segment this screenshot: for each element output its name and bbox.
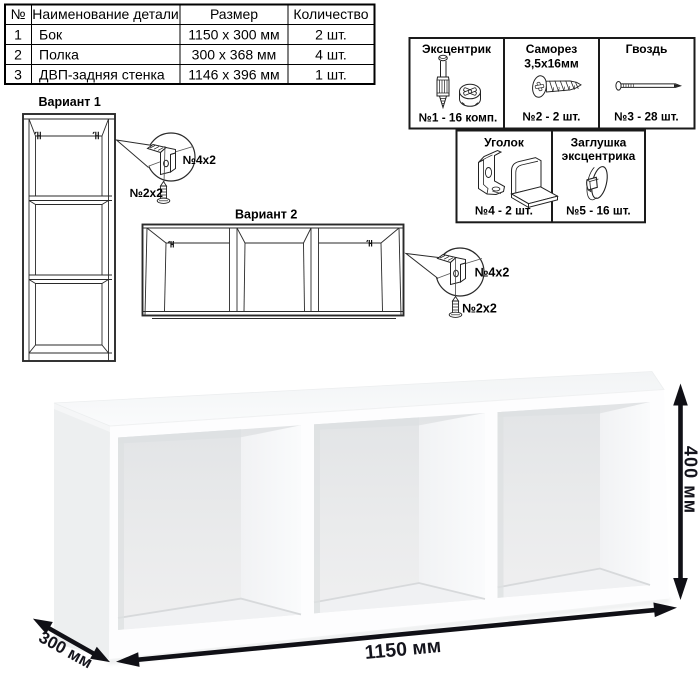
- svg-text:№5 - 16 шт.: №5 - 16 шт.: [566, 204, 630, 218]
- svg-text:3: 3: [14, 67, 22, 83]
- svg-text:3,5х16мм: 3,5х16мм: [524, 57, 579, 71]
- svg-text:300 х 368 мм: 300 х 368 мм: [192, 47, 277, 63]
- svg-text:400 мм: 400 мм: [681, 446, 700, 514]
- svg-text:№3 - 28 шт.: №3 - 28 шт.: [614, 110, 678, 124]
- svg-text:Вариант 2: Вариант 2: [235, 208, 297, 222]
- svg-text:эксцентрика: эксцентрика: [562, 149, 636, 163]
- svg-text:№4 - 2 шт.: №4 - 2 шт.: [475, 204, 533, 218]
- svg-text:№1 - 16 комп.: №1 - 16 комп.: [419, 111, 498, 125]
- svg-text:Заглушка: Заглушка: [571, 136, 627, 150]
- svg-text:Уголок: Уголок: [484, 136, 525, 150]
- svg-text:Количество: Количество: [293, 6, 368, 22]
- svg-text:№4х2: №4х2: [183, 153, 217, 167]
- svg-text:4 шт.: 4 шт.: [315, 47, 347, 63]
- svg-text:№2х2: №2х2: [462, 302, 497, 316]
- svg-text:Эксцентрик: Эксцентрик: [422, 42, 492, 56]
- svg-text:Полка: Полка: [39, 47, 79, 63]
- svg-text:2 шт.: 2 шт.: [315, 27, 347, 43]
- svg-text:Размер: Размер: [210, 6, 258, 22]
- svg-text:1 шт.: 1 шт.: [315, 67, 347, 83]
- svg-text:2: 2: [14, 47, 22, 63]
- svg-text:Бок: Бок: [39, 27, 63, 43]
- svg-text:Саморез: Саморез: [526, 42, 578, 56]
- svg-text:1: 1: [14, 27, 22, 43]
- svg-text:Гвоздь: Гвоздь: [626, 42, 668, 56]
- svg-text:№2х2: №2х2: [130, 186, 164, 200]
- svg-text:№: №: [10, 6, 25, 22]
- svg-text:Наименование детали: Наименование детали: [32, 6, 178, 22]
- svg-text:1146 х 396 мм: 1146 х 396 мм: [188, 67, 279, 83]
- svg-text:Вариант 1: Вариант 1: [39, 95, 101, 109]
- svg-text:1150 х 300 мм: 1150 х 300 мм: [188, 27, 279, 43]
- svg-text:ДВП-задняя стенка: ДВП-задняя стенка: [39, 67, 165, 83]
- svg-text:№2 - 2 шт.: №2 - 2 шт.: [523, 110, 581, 124]
- svg-text:№4х2: №4х2: [475, 266, 510, 280]
